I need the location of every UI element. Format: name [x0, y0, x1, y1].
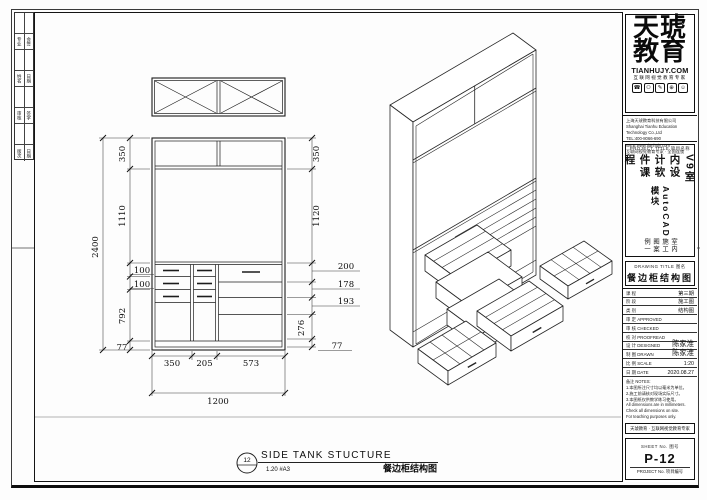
drawing-title-text: 餐边柜结构图 [627, 271, 693, 284]
sheet-number: P-12 [644, 451, 675, 466]
sheet-no-label: SHEET No. 图号 [641, 444, 679, 450]
brand-website: TIANHUJY.COM [631, 66, 688, 75]
revision-strip: 专业会签 姓名日期 审核签字 版次日期 [14, 12, 34, 160]
field-row: 审 定 APPROVED [623, 315, 697, 324]
strip-cell: 日期 [25, 145, 34, 161]
strip-cell: 日期 [25, 71, 34, 86]
strip-cell [25, 50, 34, 70]
sheet-number-panel: SHEET No. 图号 P-12 PROJECT No. 项目编号 [625, 438, 695, 480]
notes-section: 备注 NOTES: 1.本图所注尺寸均以毫米为单位。 2.施工前请核对现场实际尺… [623, 377, 697, 421]
pencil-icon: ✎ [655, 83, 665, 93]
project-no-label: PROJECT No. 项目编号 [630, 467, 690, 475]
strip-cell [15, 50, 25, 70]
note-line: For teaching purposes only. [626, 414, 694, 420]
user-icon: ⚇ [644, 83, 654, 93]
strip-cell [25, 13, 34, 33]
project-line-1: V9室内设计软件课程 [623, 154, 698, 186]
field-row: 阶 段施工图 [623, 298, 697, 307]
phone-icon: ☎ [632, 83, 642, 93]
company-line: Shanghai Tianhu Education Technology Co.… [626, 124, 694, 137]
brand-section: 天琥 教育 TIANHUJY.COM 互联网视觉教育专家 ☎ ⚇ ✎ ⊕ ☺ [623, 12, 697, 116]
field-row: 类 别结构图 [623, 306, 697, 315]
strip-cell [25, 87, 34, 107]
brand-logo-box: 天琥 教育 TIANHUJY.COM 互联网视觉教育专家 ☎ ⚇ ✎ ⊕ ☺ [625, 14, 695, 113]
strip-cell: 审核 [15, 108, 25, 123]
strip-cell: 会签 [25, 34, 34, 49]
inner-frame [34, 12, 697, 482]
strip-cell: 姓名 [15, 71, 25, 86]
field-row: 日 期 DATE2020.08.27 [623, 368, 697, 377]
strip-cell [15, 87, 25, 107]
stamp-note: 天琥教育 · 互联网视觉教育专家 [625, 423, 695, 434]
drawing-title-header: DRAWING TITLE 图名 [634, 264, 685, 270]
strip-cell [15, 124, 25, 144]
title-block: 天琥 教育 TIANHUJY.COM 互联网视觉教育专家 ☎ ⚇ ✎ ⊕ ☺ 上… [622, 12, 697, 482]
field-row: 课 程第三期 [623, 289, 697, 298]
strip-cell: 签字 [25, 108, 34, 123]
project-line-2: AutoCAD模块 [649, 186, 671, 238]
field-row-signature: 制 图 DRAWN陈家淮 [623, 350, 697, 359]
brand-tagline: 互联网视觉教育专家 [633, 75, 686, 81]
company-info: 上海天琥教育科技有限公司 Shanghai Tianhu Education T… [623, 116, 697, 142]
project-line-3: 室内施工图案例一 [642, 238, 678, 254]
strip-cell: 版次 [15, 145, 25, 161]
project-title-section: PROJECT TITLE 项目名称 V9室内设计软件课程 AutoCAD模块 … [623, 142, 697, 259]
drawing-title-section: DRAWING TITLE 图名 餐边柜结构图 [623, 259, 697, 289]
field-rows: 课 程第三期 阶 段施工图 类 别结构图 审 定 APPROVED 审 核 CH… [623, 289, 697, 377]
brand-logo-line2: 教育 [633, 41, 687, 65]
brand-icon-row: ☎ ⚇ ✎ ⊕ ☺ [632, 83, 688, 93]
field-row: 比 例 SCALE1:20 [623, 359, 697, 368]
note-line: 1.本图所注尺寸均以毫米为单位。 [626, 385, 694, 391]
strip-cell [15, 13, 25, 33]
globe-icon: ⊕ [667, 83, 677, 93]
strip-cell [25, 124, 34, 144]
smiley-icon: ☺ [678, 83, 688, 93]
field-row: 审 核 CHECKED [623, 324, 697, 333]
strip-cell: 专业 [15, 34, 25, 49]
project-title-vertical: V9室内设计软件课程 AutoCAD模块 室内施工图案例一 [622, 152, 699, 256]
